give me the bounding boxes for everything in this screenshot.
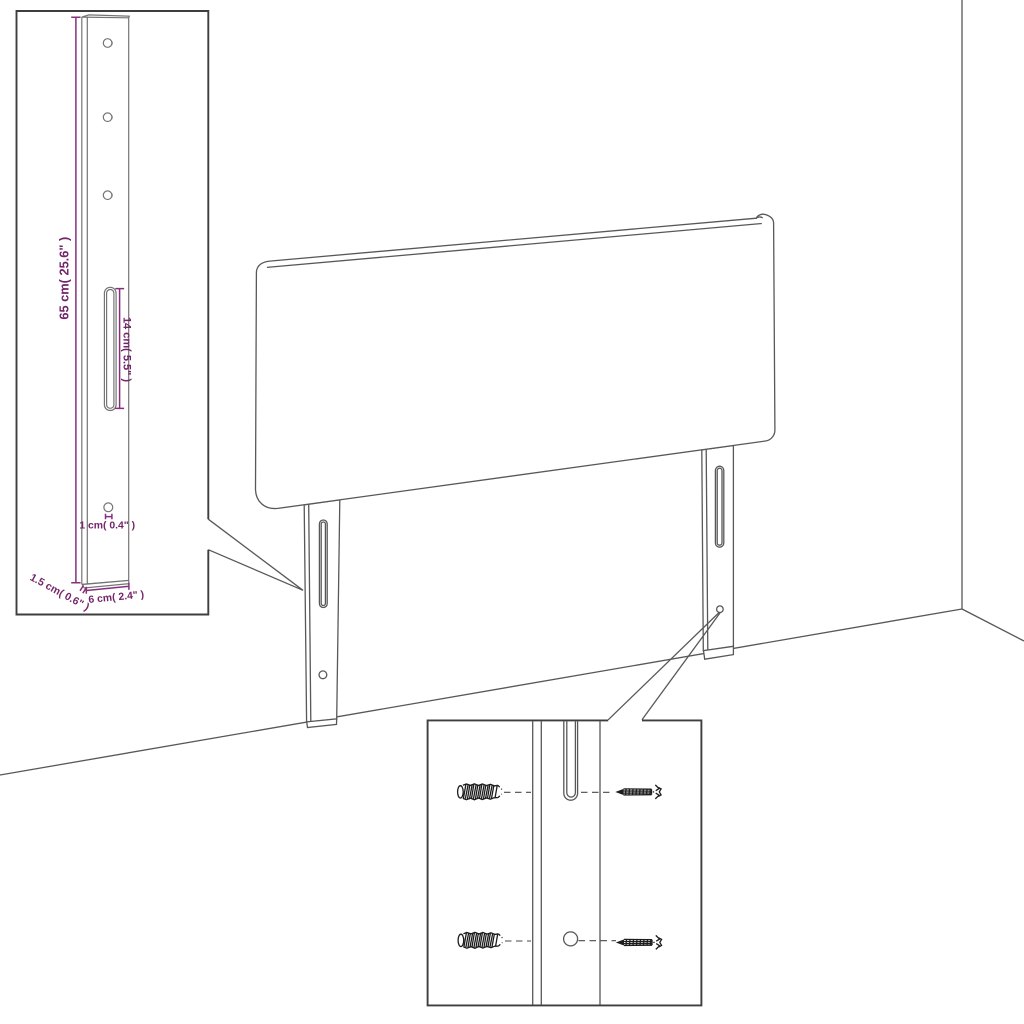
svg-text:65 cm( 25.6" ): 65 cm( 25.6" )	[56, 237, 71, 320]
svg-text:14 cm( 5.5" ): 14 cm( 5.5" )	[121, 317, 133, 382]
svg-text:1 cm( 0.4" ): 1 cm( 0.4" )	[79, 521, 135, 532]
